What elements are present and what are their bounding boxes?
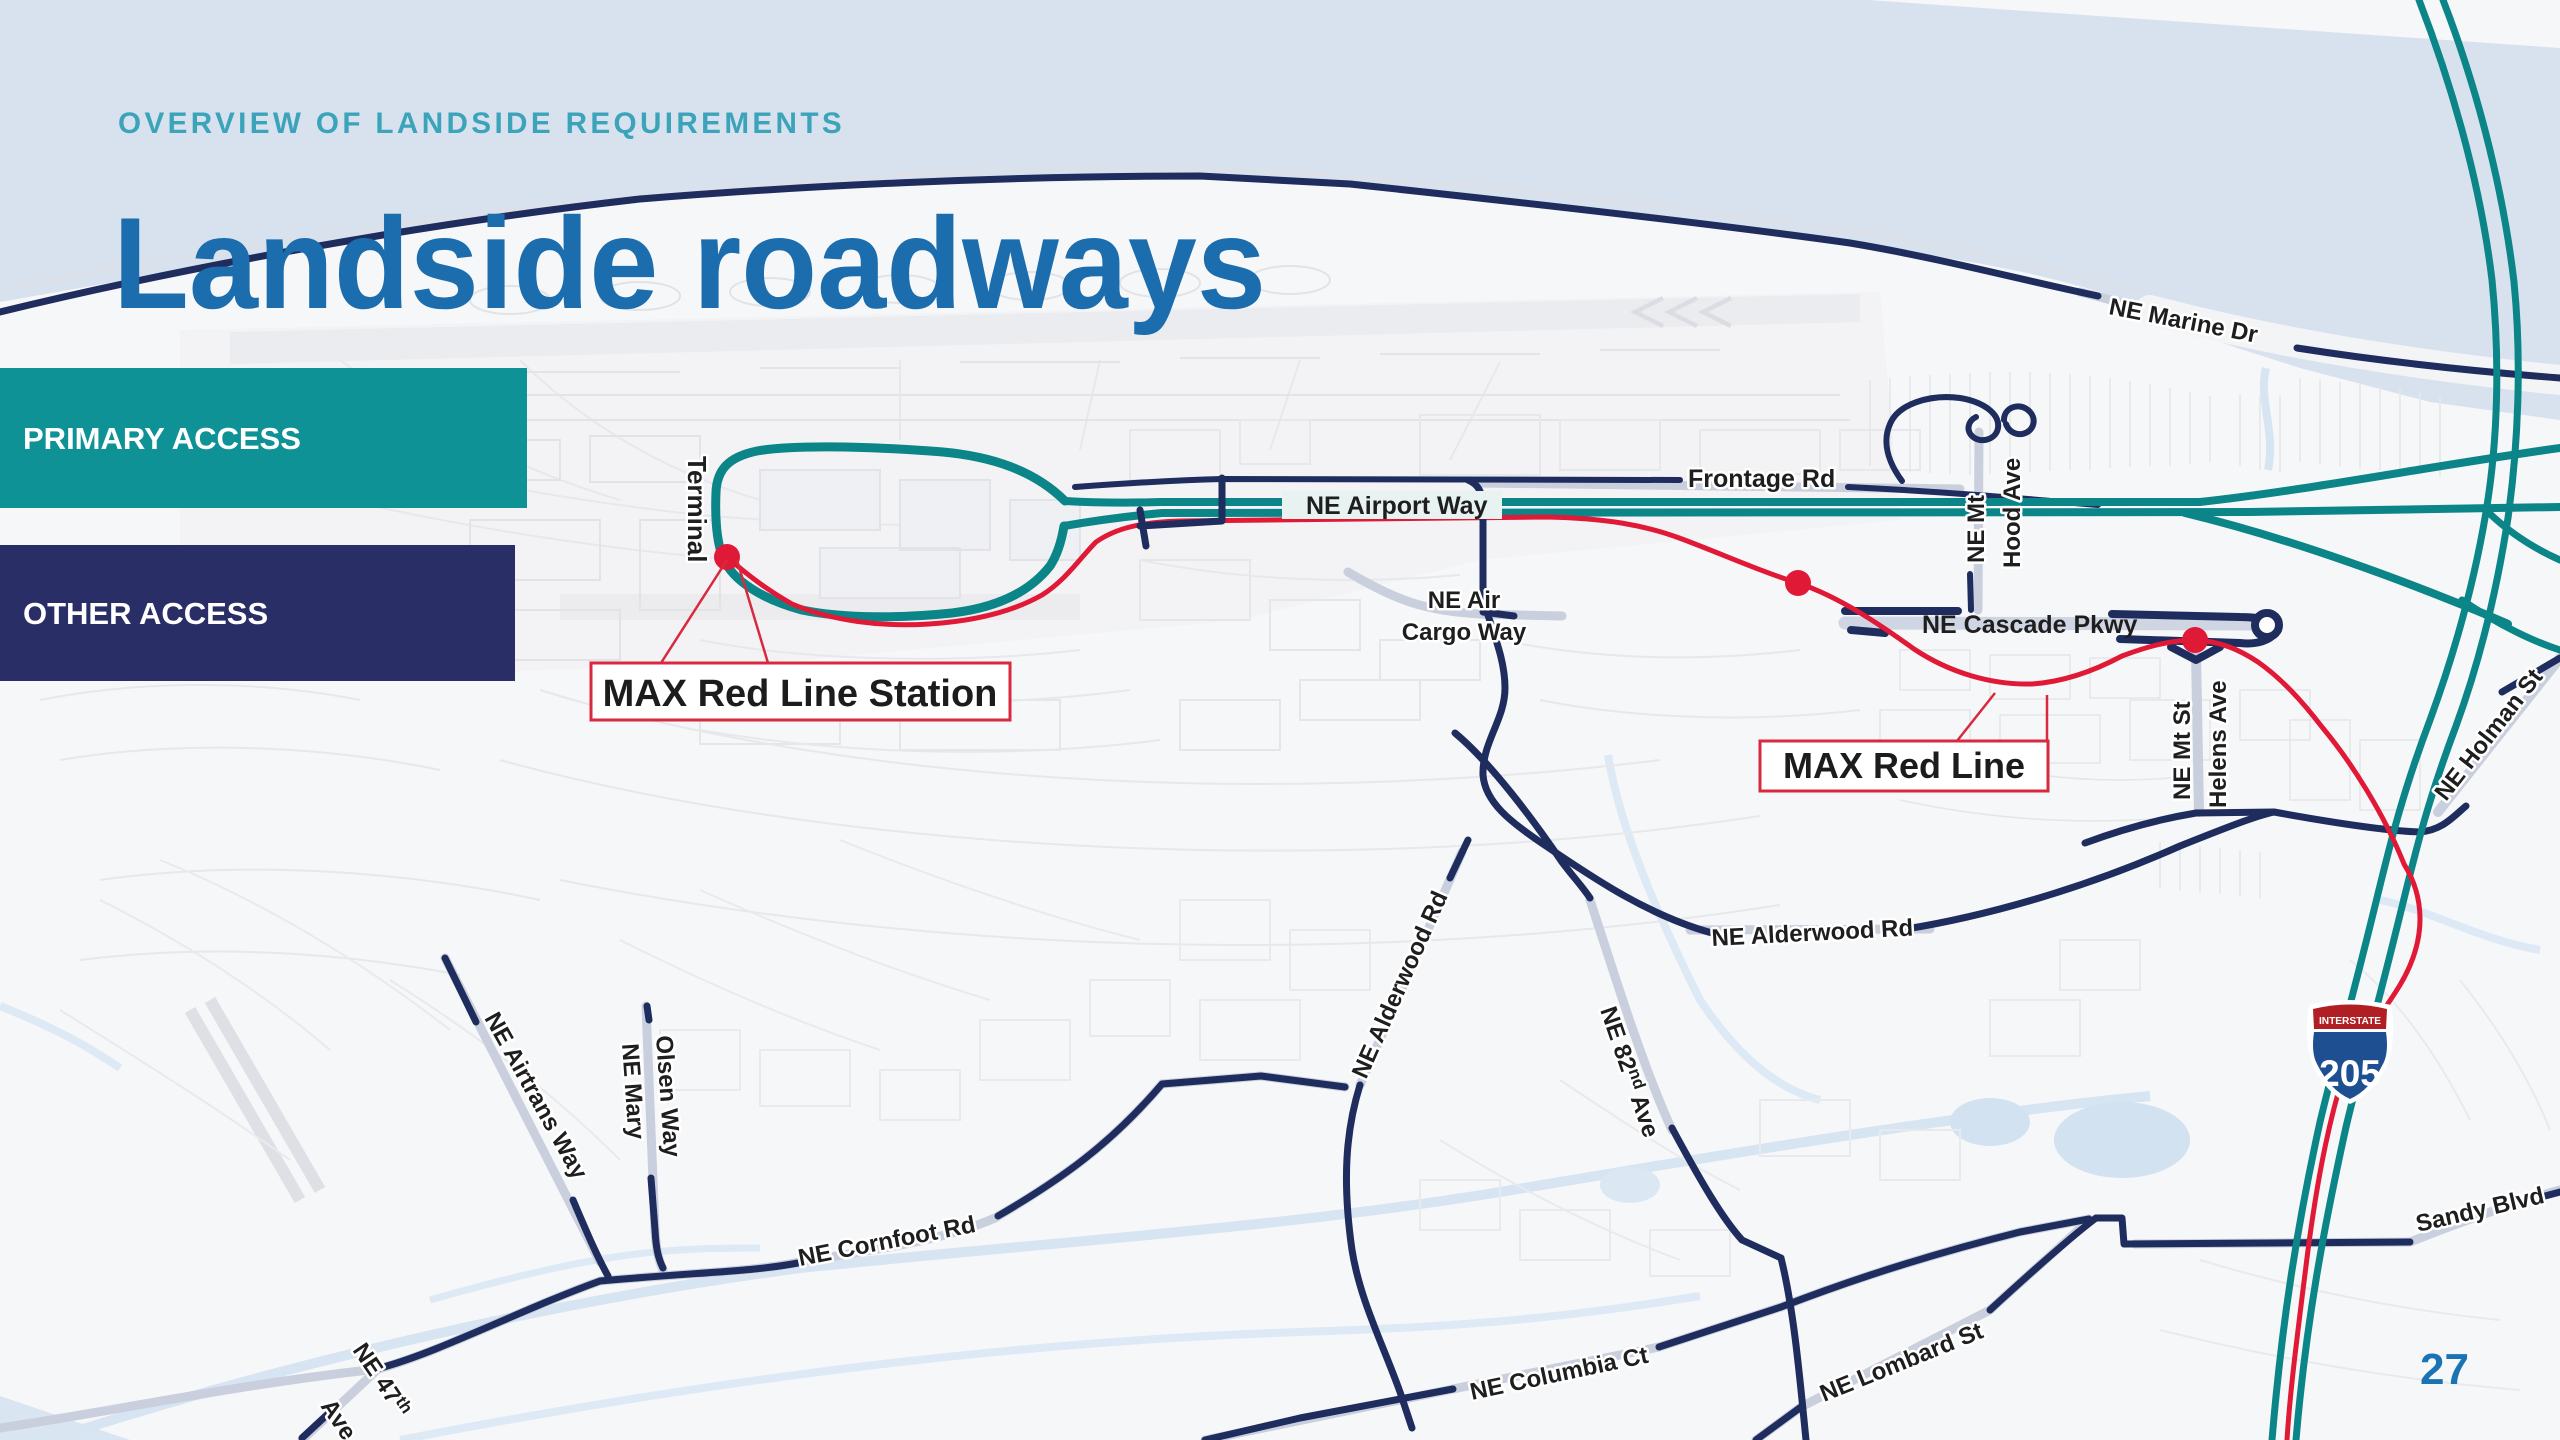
svg-text:205: 205	[2319, 1053, 2381, 1094]
svg-text:Hood Ave: Hood Ave	[1999, 458, 2026, 568]
svg-text:Cargo Way: Cargo Way	[1402, 619, 1527, 646]
svg-text:OTHER ACCESS: OTHER ACCESS	[23, 596, 268, 631]
svg-text:NE Air: NE Air	[1428, 587, 1500, 614]
svg-text:Frontage Rd: Frontage Rd	[1688, 465, 1835, 493]
svg-text:MAX Red Line: MAX Red Line	[1783, 745, 2025, 786]
svg-text:27: 27	[2420, 1345, 2469, 1394]
svg-text:OVERVIEW OF LANDSIDE REQUIREME: OVERVIEW OF LANDSIDE REQUIREMENTS	[118, 107, 845, 140]
svg-text:NE Cascade Pkwy: NE Cascade Pkwy	[1922, 611, 2137, 639]
svg-text:Landside roadways: Landside roadways	[113, 190, 1266, 336]
svg-text:Helens Ave: Helens Ave	[2205, 680, 2232, 808]
svg-text:Terminal: Terminal	[682, 456, 712, 562]
svg-text:NE Mt St: NE Mt St	[2169, 701, 2196, 800]
svg-text:INTERSTATE: INTERSTATE	[2319, 1015, 2381, 1027]
svg-text:MAX Red Line Station: MAX Red Line Station	[603, 673, 998, 715]
svg-text:NE Airport Way: NE Airport Way	[1306, 492, 1488, 520]
svg-text:NE Mt: NE Mt	[1963, 495, 1990, 563]
svg-text:PRIMARY ACCESS: PRIMARY ACCESS	[23, 421, 301, 456]
